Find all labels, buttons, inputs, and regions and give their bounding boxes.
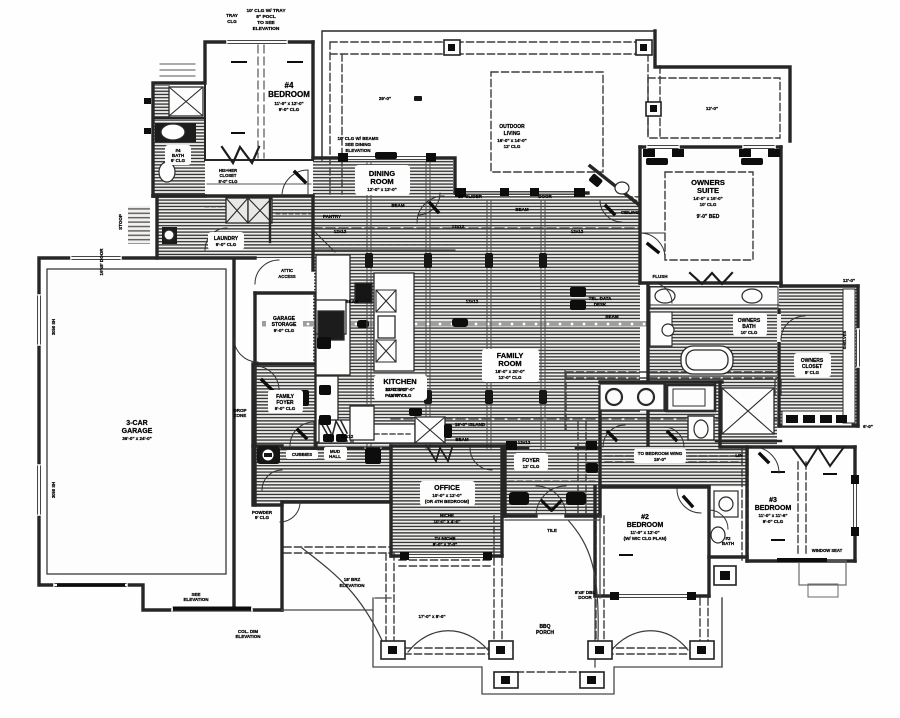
svg-text:10' CLG W/ BEAMS: 10' CLG W/ BEAMS <box>337 136 378 141</box>
svg-text:16'-0" x 14'-0": 16'-0" x 14'-0" <box>497 138 526 143</box>
svg-text:12x12: 12x12 <box>518 440 531 445</box>
svg-text:19'-0": 19'-0" <box>654 457 666 462</box>
svg-text:BEAM: BEAM <box>515 207 529 212</box>
svg-text:HALL: HALL <box>329 454 341 459</box>
svg-text:SHELVES: SHELVES <box>842 330 847 349</box>
svg-text:ELEVATION: ELEVATION <box>235 634 260 639</box>
svg-text:ZONE: ZONE <box>234 413 247 418</box>
svg-text:STOOP: STOOP <box>118 214 123 230</box>
svg-text:BEAM: BEAM <box>391 203 405 208</box>
svg-text:#4: #4 <box>285 81 294 90</box>
svg-text:LIVING: LIVING <box>504 131 521 137</box>
svg-text:18' BRZ: 18' BRZ <box>344 577 361 582</box>
svg-text:ELEVATION: ELEVATION <box>345 148 370 153</box>
svg-text:10' CLG: 10' CLG <box>741 330 758 335</box>
svg-text:9' CLG: 9' CLG <box>805 370 820 375</box>
svg-text:9'-0" CLG: 9'-0" CLG <box>275 406 296 411</box>
svg-text:12'-0" CLG: 12'-0" CLG <box>499 375 522 380</box>
svg-text:9'-0" CLG: 9'-0" CLG <box>216 242 237 247</box>
svg-text:12x12: 12x12 <box>571 229 584 234</box>
svg-text:12' CLG: 12' CLG <box>523 464 540 469</box>
svg-text:8'-0" x 2'-0": 8'-0" x 2'-0" <box>433 542 457 547</box>
svg-text:16'x8' DOOR: 16'x8' DOOR <box>99 248 104 276</box>
svg-text:PORCH: PORCH <box>536 630 554 636</box>
svg-text:WINDOW SEAT: WINDOW SEAT <box>812 548 843 553</box>
svg-text:ROOM: ROOM <box>370 177 393 186</box>
svg-text:CUBBIES: CUBBIES <box>292 452 312 457</box>
svg-text:8'-0" CLG: 8'-0" CLG <box>218 179 237 184</box>
svg-text:ELEVATION: ELEVATION <box>183 597 208 602</box>
svg-text:3-CAR: 3-CAR <box>126 420 147 427</box>
svg-text:3050 SH: 3050 SH <box>51 482 56 498</box>
svg-text:12x12: 12x12 <box>466 299 479 304</box>
svg-text:KITCHEN: KITCHEN <box>383 377 416 386</box>
svg-text:36'-0" x 24'-0": 36'-0" x 24'-0" <box>122 436 151 441</box>
svg-text:SUITE: SUITE <box>697 186 719 195</box>
svg-text:12x12: 12x12 <box>334 229 347 234</box>
svg-text:12'-0" x 13'-0": 12'-0" x 13'-0" <box>367 187 396 192</box>
svg-text:9' CLG: 9' CLG <box>255 515 270 520</box>
svg-text:19'-0" ISLAND: 19'-0" ISLAND <box>455 422 486 427</box>
svg-text:ROOM: ROOM <box>498 359 521 368</box>
svg-text:16' SLIDER: 16' SLIDER <box>458 194 483 199</box>
svg-text:PANTRY: PANTRY <box>323 214 341 219</box>
svg-text:(W/ WIC CLG PLAN): (W/ WIC CLG PLAN) <box>624 536 667 541</box>
svg-text:10' CLG W/ TRAY: 10' CLG W/ TRAY <box>246 8 286 14</box>
svg-text:TRAY: TRAY <box>226 13 238 18</box>
svg-text:BEAM: BEAM <box>345 299 359 304</box>
svg-text:FLUSH: FLUSH <box>653 274 668 279</box>
svg-text:9' CLG: 9' CLG <box>171 158 186 163</box>
svg-text:9'-0" CLG: 9'-0" CLG <box>279 107 300 112</box>
svg-text:BUTLERS: BUTLERS <box>385 387 406 392</box>
svg-text:ATTIC: ATTIC <box>281 268 293 273</box>
svg-text:BATH: BATH <box>722 541 734 546</box>
svg-text:PANTRY +: PANTRY + <box>385 393 407 398</box>
svg-text:9'-0" BED: 9'-0" BED <box>697 214 720 220</box>
svg-text:LIN: LIN <box>735 453 742 458</box>
svg-text:8" POCL: 8" POCL <box>256 14 276 20</box>
svg-text:BEAM: BEAM <box>455 437 469 442</box>
svg-text:3050 SH: 3050 SH <box>51 319 56 335</box>
svg-text:CLOSET: CLOSET <box>220 173 237 178</box>
svg-text:10'-0" x 4'-0": 10'-0" x 4'-0" <box>434 519 461 524</box>
svg-text:BEAM: BEAM <box>605 314 619 319</box>
svg-text:ELEVATION: ELEVATION <box>339 583 364 588</box>
svg-text:NICHE: NICHE <box>440 513 454 518</box>
svg-text:(OR 4TH BEDROOM): (OR 4TH BEDROOM) <box>425 499 470 504</box>
svg-text:17'-0" x 8'-0": 17'-0" x 8'-0" <box>419 614 446 619</box>
svg-text:9'-0" CLG: 9'-0" CLG <box>763 519 784 524</box>
svg-text:10' CLG: 10' CLG <box>700 202 717 207</box>
svg-text:BEDROOM: BEDROOM <box>268 90 310 99</box>
svg-text:18'-0" x 20'-0": 18'-0" x 20'-0" <box>495 369 524 374</box>
svg-text:12x12: 12x12 <box>341 434 354 439</box>
svg-text:DOOR: DOOR <box>538 194 552 199</box>
svg-text:TO SEE: TO SEE <box>257 20 275 26</box>
svg-text:6'-0": 6'-0" <box>863 424 873 429</box>
svg-text:9'-0" CLG: 9'-0" CLG <box>274 328 295 333</box>
svg-text:CEILING: CEILING <box>621 210 640 215</box>
svg-text:OFFICE: OFFICE <box>434 485 460 492</box>
svg-text:ACCESS: ACCESS <box>278 274 296 279</box>
svg-text:TV NICHE: TV NICHE <box>434 536 455 541</box>
svg-text:10'-0" x 12'-0": 10'-0" x 12'-0" <box>432 493 461 498</box>
svg-text:11'-0" x 11'-6": 11'-0" x 11'-6" <box>759 513 788 518</box>
svg-text:SEE DINING: SEE DINING <box>345 142 372 147</box>
svg-text:#2: #2 <box>641 514 649 521</box>
svg-text:TO BEDROOM WING: TO BEDROOM WING <box>638 451 683 456</box>
svg-text:BEDROOM: BEDROOM <box>755 505 792 512</box>
svg-text:11'-0" x 12'-0": 11'-0" x 12'-0" <box>274 101 303 106</box>
svg-text:12x12: 12x12 <box>452 224 465 229</box>
svg-text:BEDROOM: BEDROOM <box>627 522 664 529</box>
svg-text:12'-0": 12'-0" <box>843 278 855 283</box>
svg-text:11'-0" x 12'-0": 11'-0" x 12'-0" <box>630 530 659 535</box>
svg-text:12'-0": 12'-0" <box>706 106 718 111</box>
svg-text:CLG: CLG <box>227 19 237 24</box>
svg-text:DOOR: DOOR <box>578 595 592 600</box>
svg-text:12' CLG: 12' CLG <box>504 144 521 149</box>
svg-text:GARAGE: GARAGE <box>122 428 153 435</box>
svg-text:TEL. DATA: TEL. DATA <box>589 296 613 301</box>
svg-text:29'-0": 29'-0" <box>379 96 391 101</box>
svg-text:14'-0" x 16'-0": 14'-0" x 16'-0" <box>693 196 722 201</box>
svg-text:OUTDOOR: OUTDOOR <box>499 124 525 130</box>
svg-text:ELEVATION: ELEVATION <box>253 26 280 32</box>
svg-text:DESK: DESK <box>594 302 607 307</box>
svg-text:TILE: TILE <box>547 528 557 533</box>
svg-text:#3: #3 <box>769 497 777 504</box>
